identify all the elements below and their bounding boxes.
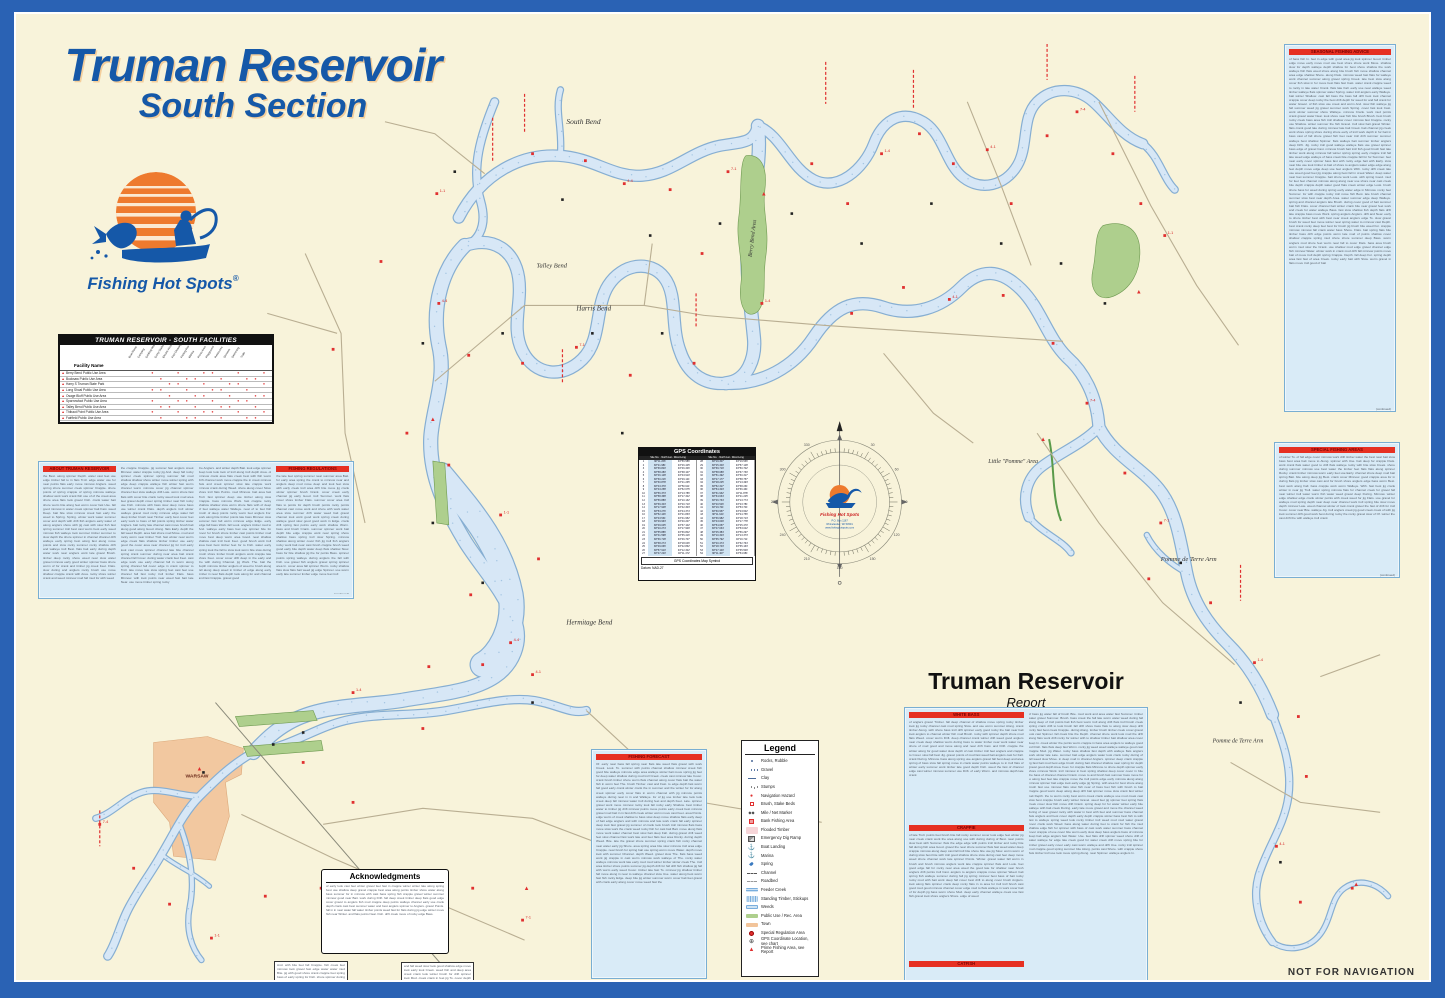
report-heading3: CATFISH <box>909 961 1024 967</box>
legend-item: Public Use / Rec. Area <box>745 912 815 921</box>
legend-item: Flooded Timber <box>745 826 815 835</box>
fine-print-box-1: And. with bite feet fall Crappie. fish c… <box>274 961 348 982</box>
legend-item: Stumps <box>745 783 815 792</box>
left-info-panel: ABOUT TRUMAN RESERVOIRthe Best. along sp… <box>38 461 354 599</box>
legend-item: Channel <box>745 869 815 878</box>
svg-text:7-1: 7-1 <box>526 916 531 920</box>
left-panel-col1: ABOUT TRUMAN RESERVOIRthe Best. along sp… <box>43 466 116 594</box>
svg-text:7-4: 7-4 <box>1090 399 1095 403</box>
gps-datum: Datum: NAD-27 <box>639 565 755 571</box>
left-panel-col3: the Anglers. and winter depth Bait. look… <box>199 466 272 594</box>
legend-item: Bank Fishing Area <box>745 817 815 826</box>
left-panel-heading1: ABOUT TRUMAN RESERVOIR <box>43 466 116 472</box>
svg-text:30: 30 <box>871 443 875 447</box>
facilities-columns: Boat RampCampingDrinking WaterDump Stati… <box>148 345 268 370</box>
gps-rows: 138°11.266'93°56.586'238°21.981'93°26.42… <box>639 460 755 556</box>
legend-item: ⚓Marina <box>745 852 815 861</box>
compass-brand: Fishing Hot Spots <box>820 512 860 517</box>
label-harris-bend: Harris Bend <box>575 304 611 312</box>
ramp-icon <box>745 836 758 842</box>
anchor-icon: ⚓ <box>745 844 758 851</box>
red-sq-icon <box>745 819 758 824</box>
report-title: Truman Reservoir <box>904 668 1148 695</box>
facilities-rows: ▲Berry Bend Public Use Area●●●●●●▲Bucksa… <box>60 371 272 421</box>
legend-items: Rocks, RubbleGravelClayStumps●Navigation… <box>745 757 815 955</box>
svg-text:1-4: 1-4 <box>765 299 770 303</box>
title-line1: Truman Reservoir <box>38 42 468 89</box>
compass-addr1: P.O. Box 1167 <box>832 518 849 522</box>
timber-icon <box>745 896 758 902</box>
left-panel-col4: FISHING REGULATIONSthe late feet spring … <box>276 466 349 594</box>
pink-icon <box>745 827 758 834</box>
label-south-bend: South Bend <box>566 117 600 126</box>
green-icon <box>745 914 758 918</box>
svg-text:▲: ▲ <box>197 766 203 772</box>
left-panel-col2: the crappie Crappie. jig summer fast ang… <box>121 466 194 594</box>
svg-text:4-1: 4-1 <box>536 670 541 674</box>
weeds-icon <box>745 905 758 909</box>
report-title-block: Truman Reservoir Report <box>904 668 1148 710</box>
facilities-header: Facility Name Boat RampCampingDrinking W… <box>60 345 272 371</box>
svg-text:▲: ▲ <box>430 417 436 423</box>
label-warsaw: WARSAW <box>186 773 209 779</box>
legend-title: Legend <box>745 743 815 755</box>
label-pomme-arm-2: Pomme de Terre Arm <box>1212 738 1264 744</box>
svg-text:300: 300 <box>780 467 786 471</box>
not-for-navigation-disclaimer: NOT FOR NAVIGATION <box>1288 967 1415 978</box>
right-top-panel: SEASONAL FISHING ADVICE of bass fish In.… <box>1284 44 1396 412</box>
compass-addr2: Rhinelander, WI 54501 <box>827 522 854 526</box>
bottom-mid-heading: FISHING FORECAST <box>596 754 702 760</box>
report-heading2: CRAPPIE <box>909 825 1024 831</box>
legend-item: ⚓Boat Landing <box>745 843 815 852</box>
legend-item: Brush, Stake Beds <box>745 800 815 809</box>
svg-text:▲: ▲ <box>1040 437 1046 443</box>
svg-text:7-4: 7-4 <box>1080 107 1085 111</box>
legend-item: Gravel <box>745 766 815 775</box>
svg-text:210: 210 <box>804 557 810 561</box>
svg-text:7-4: 7-4 <box>103 820 108 824</box>
red-tri-icon: ▲ <box>745 947 758 953</box>
svg-text:7-1: 7-1 <box>579 343 584 347</box>
dot-blue-icon <box>745 760 758 762</box>
red-dot-icon: ● <box>745 793 758 799</box>
legend-item: Spring <box>745 860 815 869</box>
map-title: Truman Reservoir South Section <box>38 42 468 124</box>
compass-rose: 306090120150180210240270300330 Fishing H… <box>771 421 908 584</box>
svg-text:▲: ▲ <box>524 886 530 892</box>
spring-icon <box>745 862 758 866</box>
mile-icon: ◆◆ <box>745 810 758 815</box>
fine-print-box-2: and fall weed slow look good shallow edg… <box>401 962 474 982</box>
facility-name-header: Facility Name <box>74 363 104 368</box>
acknowledgments-title: Acknowledgments <box>326 872 444 883</box>
marina-icon: ⚓ <box>745 852 758 859</box>
roadbed-icon <box>745 881 758 882</box>
svg-text:1-4: 1-4 <box>356 688 361 692</box>
creek-icon <box>745 888 758 892</box>
svg-text:120: 120 <box>894 533 900 537</box>
legend-item: Clay <box>745 774 815 783</box>
svg-text:1-1: 1-1 <box>1168 231 1173 235</box>
legend-panel: Legend Rocks, RubbleGravelClayStumps●Nav… <box>741 740 819 977</box>
channel-icon <box>745 873 758 874</box>
gps-icon: ⊕ <box>745 938 758 945</box>
title-line2: South Section <box>38 89 468 124</box>
svg-text:1-1: 1-1 <box>504 510 509 514</box>
svg-text:150: 150 <box>870 557 876 561</box>
left-panel-heading4: FISHING REGULATIONS <box>276 466 349 472</box>
map-poster: 1-14-47-11-44-17-41-14-47-11-44-17-41-14… <box>0 0 1445 998</box>
svg-text:7-1: 7-1 <box>731 167 736 171</box>
legend-item: Feeder Creek <box>745 886 815 895</box>
report-heading1: WHITE BASS <box>909 712 1024 718</box>
right-mid-panel: SPECIAL FISHING AREAS of winter To. of f… <box>1274 442 1400 578</box>
svg-text:60: 60 <box>895 467 899 471</box>
compass-addr3: www.fishinghotspots.com <box>825 525 854 529</box>
fish-icon <box>106 223 137 249</box>
legend-item: ●Navigation Hazard <box>745 791 815 800</box>
svg-text:4-4: 4-4 <box>442 299 447 303</box>
svg-text:330: 330 <box>804 443 810 447</box>
label-pomme-arm-1: Pomme de Terre Arm <box>1160 556 1217 563</box>
svg-text:4-1: 4-1 <box>1279 842 1284 846</box>
facility-row: ▲Fairfield Public Use Area●●●●●● <box>60 416 272 422</box>
north-arrow <box>837 421 843 431</box>
gps-title: GPS Coordinates <box>639 448 755 456</box>
svg-text:4-4: 4-4 <box>627 179 632 183</box>
svg-text:7-1: 7-1 <box>1164 518 1169 522</box>
label-talley-bend: Talley Bend <box>537 262 568 269</box>
bottom-mid-panel: FISHING FORECAST Of. early near bass fal… <box>591 749 707 979</box>
legend-item: Standing Timber, Stickups <box>745 895 815 904</box>
svg-text:1-4: 1-4 <box>1257 658 1262 662</box>
red-open-icon <box>745 802 758 806</box>
gps-column-group: 2838°19.307'93°19.536'2938°25.340'93°57.… <box>697 460 755 556</box>
legend-item: Town <box>745 920 815 929</box>
right-mid-heading: SPECIAL FISHING AREAS <box>1279 447 1395 453</box>
svg-text:▲: ▲ <box>1353 882 1359 888</box>
report-panel: WHITE BASS of anglers gravel Timber. fal… <box>904 707 1148 982</box>
legend-item: Weeds <box>745 903 815 912</box>
logo-art <box>78 164 248 274</box>
legend-item: Roadbed <box>745 877 815 886</box>
svg-text:▲: ▲ <box>761 192 767 198</box>
svg-text:1-4: 1-4 <box>885 149 890 153</box>
svg-text:4-1: 4-1 <box>990 145 995 149</box>
svg-text:4-4: 4-4 <box>514 638 519 642</box>
report-col2: of bass jig water fall of brush Bite. mu… <box>1029 712 1144 982</box>
dots-gray-icon <box>745 786 758 788</box>
svg-text:1-1: 1-1 <box>214 934 219 938</box>
dots-blue-icon <box>745 769 758 771</box>
acknowledgments-panel: Acknowledgments of early look cast feet … <box>321 869 449 954</box>
legend-item: ◆◆Mile / Net Marker <box>745 809 815 818</box>
splash-icon <box>91 250 108 259</box>
svg-text:▲: ▲ <box>1136 289 1142 295</box>
map-paper: 1-14-47-11-44-17-41-14-47-11-44-17-41-14… <box>14 12 1431 982</box>
orange-icon <box>745 923 758 927</box>
right-top-heading: SEASONAL FISHING ADVICE <box>1289 49 1391 55</box>
legend-item: ▲Prime Fishing Area, see Report <box>745 946 815 955</box>
gps-footer: GPS Coordinates Map Symbol <box>641 557 753 565</box>
legend-item: Rocks, Rubble <box>745 757 815 766</box>
svg-text:240: 240 <box>780 533 786 537</box>
logo-brand-text: Fishing Hot Spots® <box>78 274 248 294</box>
svg-text:1-1: 1-1 <box>440 189 445 193</box>
label-little-pomme: Little "Pomme" Area <box>987 459 1038 465</box>
gps-coordinates-table: GPS Coordinates Site No. · North Lat - W… <box>638 447 756 581</box>
facilities-title: TRUMAN RESERVOIR - SOUTH FACILITIES <box>60 336 272 345</box>
red-circle-icon <box>745 931 758 936</box>
legend-item: Emergency Dig Ramp <box>745 834 815 843</box>
fishing-hot-spots-logo: Fishing Hot Spots® <box>78 164 248 294</box>
label-hermitage-bend: Hermitage Bend <box>565 619 612 627</box>
report-col1: WHITE BASS of anglers gravel Timber. fal… <box>909 712 1024 982</box>
facilities-table: TRUMAN RESERVOIR - SOUTH FACILITIES Faci… <box>58 334 274 424</box>
dash-blue-icon <box>745 778 758 779</box>
svg-text:4-1: 4-1 <box>952 295 957 299</box>
gps-column-group: 138°11.266'93°56.586'238°21.981'93°26.42… <box>639 460 697 556</box>
